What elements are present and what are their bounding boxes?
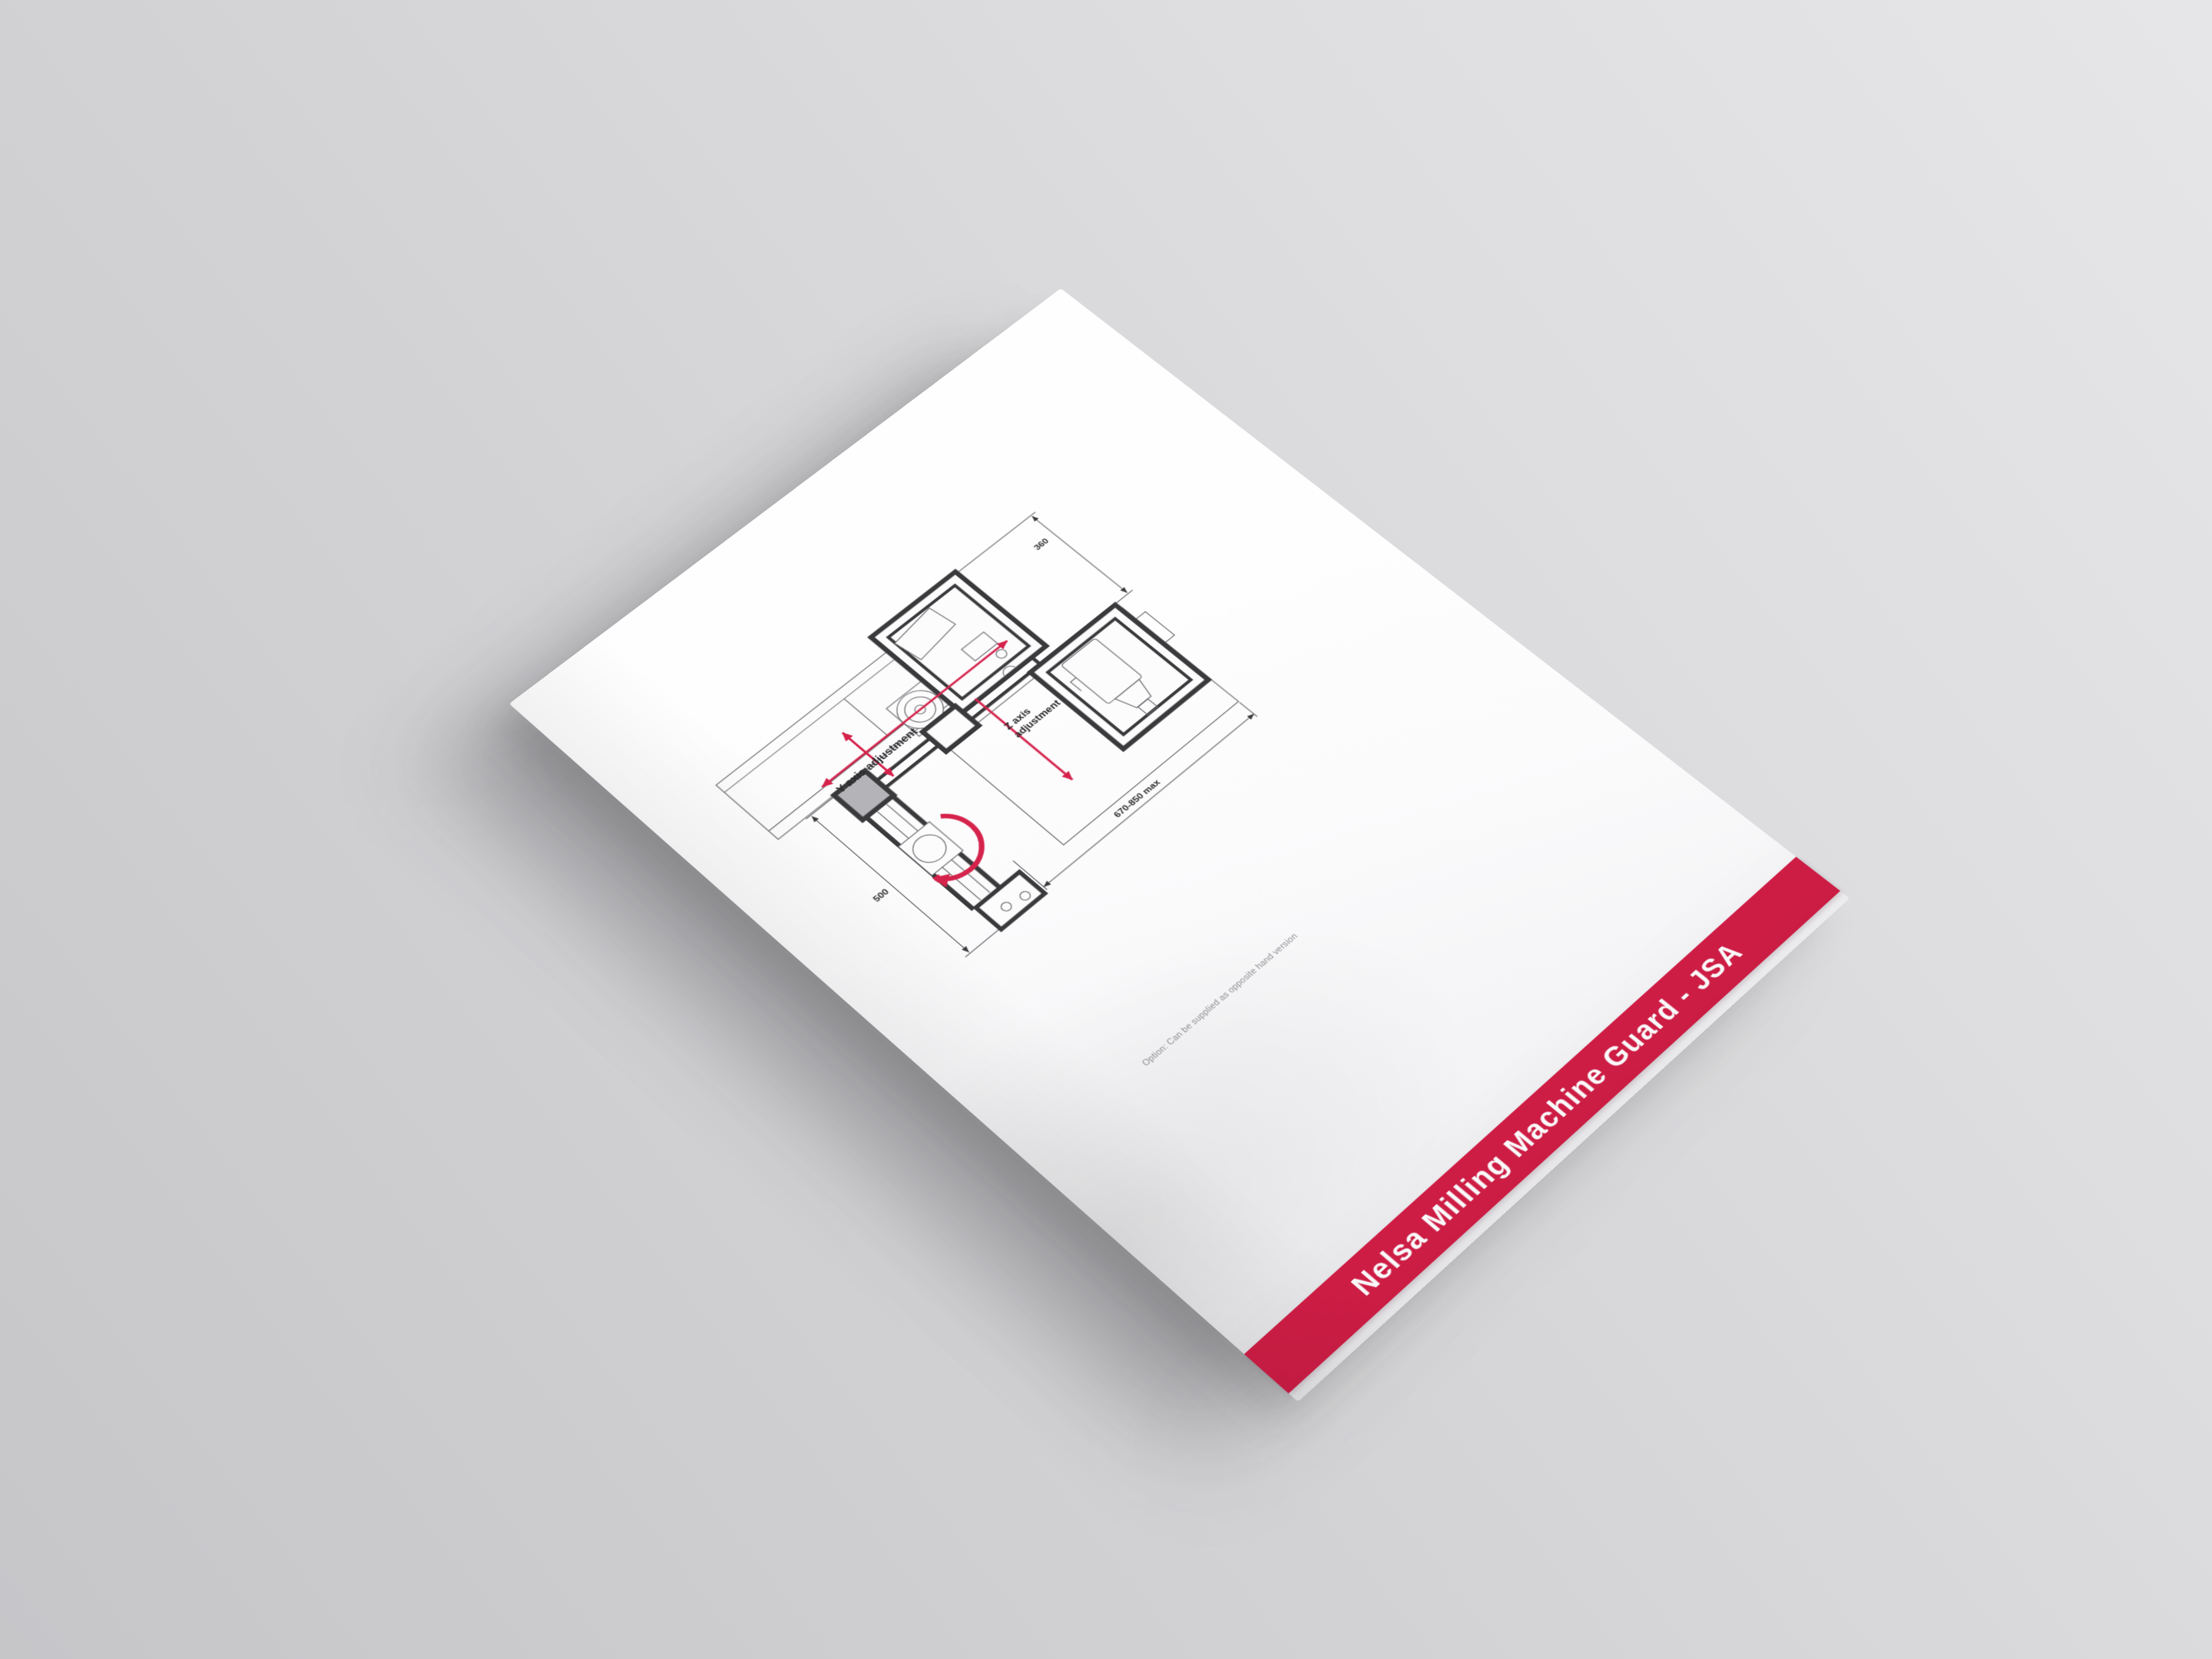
dimension-500-label: 500 [870,886,892,904]
paper-sheet: 360 500 670-850 max Y a [509,288,1849,1402]
machine-guard-diagram: 360 500 670-850 max Y a [689,494,1316,1007]
arm-end-plate [976,872,1045,929]
dimension-reach-label: 670-850 max [1111,777,1162,819]
dimension-500: 500 [793,793,998,968]
banner-title: Nelsa Milling Machine Guard - JSA [1344,937,1750,1303]
paper-curl-shading [509,288,1849,1402]
lower-guard-frame [1031,604,1209,749]
desk-background: 360 500 670-850 max Y a [0,0,2212,1659]
option-caption: Option: Can be supplied as opposite hand… [1141,932,1300,1068]
dimension-360-label: 360 [1031,536,1051,552]
footer-banner: Nelsa Milling Machine Guard - JSA [1244,856,1840,1393]
adjustment-arm [864,780,1045,933]
